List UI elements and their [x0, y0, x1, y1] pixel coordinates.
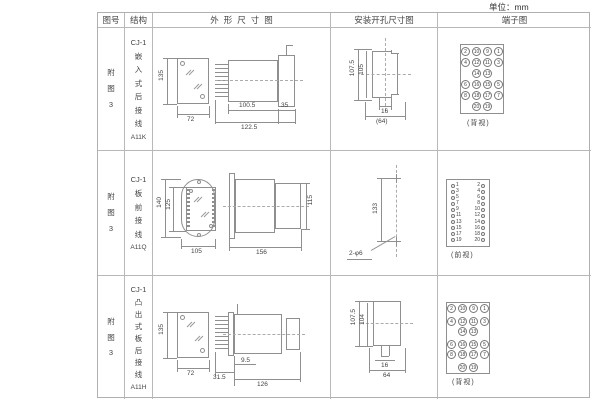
dim-label-inner-width: 16 — [381, 363, 388, 370]
terminal-circle: 7 — [480, 350, 489, 359]
terminal-circle: 17 — [469, 350, 478, 359]
terminal-number: 19 — [456, 238, 462, 243]
terminal-circle: 2 — [461, 47, 470, 56]
cell-install-1: 107.5 105 16 (64) — [331, 28, 438, 151]
hook-line — [286, 45, 293, 46]
ext-line — [161, 179, 181, 180]
screw-hole-icon — [180, 315, 185, 320]
terminal-circle — [481, 232, 485, 236]
ext-line — [181, 239, 182, 249]
flange-outline — [278, 55, 295, 107]
ext-line — [228, 104, 229, 114]
terminal-circle — [481, 196, 485, 200]
hole-cross — [396, 174, 397, 183]
terminal-circle — [451, 238, 455, 242]
ext-line — [161, 237, 181, 238]
dim-line — [167, 58, 168, 105]
dim-line — [167, 312, 168, 358]
ext-line — [391, 98, 392, 110]
terminal-circle: 15 — [483, 80, 492, 89]
terminal-circle: 19 — [483, 102, 492, 111]
dim-label-outer-width: (64) — [376, 119, 388, 126]
terminal-row: 818177 — [461, 91, 503, 100]
ext-line — [209, 360, 210, 372]
ext-line — [301, 183, 310, 184]
terminal-circle: 14 — [458, 327, 467, 336]
center-line — [223, 206, 309, 207]
terminal-circle — [451, 190, 455, 194]
terminal-circle: 4 — [447, 317, 456, 326]
cell-terminal-1: 2109141211314136161558181772019 (背视) — [438, 28, 591, 151]
screw-hole-icon — [180, 61, 185, 66]
ext-line — [405, 102, 406, 120]
cell-terminal-3: 2109141211314136161558181772019 (背视) — [438, 276, 591, 399]
dim-label-outer-width: 64 — [383, 373, 390, 380]
terminal-circle: 8 — [461, 91, 470, 100]
terminal-circle: 20 — [458, 363, 467, 372]
header-terminal: 端子图 — [438, 13, 591, 28]
ext-line — [301, 229, 310, 230]
cell-install-3: 107.5 104 16 64 — [331, 276, 438, 399]
dim-line — [177, 114, 209, 115]
terminal-circle: 11 — [483, 58, 492, 67]
dim-line — [366, 51, 367, 98]
screw-hole-icon — [189, 189, 193, 193]
terminal-circle: 18 — [472, 91, 481, 100]
fig-no-label: 附图3 — [107, 189, 115, 236]
terminal-circle: 15 — [469, 340, 478, 349]
dim-label-depth: 156 — [256, 250, 267, 257]
view-label: (背视) — [467, 120, 490, 127]
structure-desc: 板前接线 — [135, 187, 143, 241]
dim-label-outer-height: 107.5 — [351, 309, 358, 325]
dim-line — [381, 178, 382, 241]
dim-line — [181, 246, 215, 247]
terminal-pins — [215, 316, 228, 350]
terminal-number: 18 — [474, 232, 480, 237]
terminal-number: 14 — [474, 220, 480, 225]
dim-label-outer-height: 107.5 — [350, 60, 357, 76]
terminal-circle: 10 — [472, 47, 481, 56]
terminal-circle: 17 — [483, 91, 492, 100]
dim-line — [278, 110, 295, 111]
terminal-box: 2109141211314136161558181772019 — [460, 44, 504, 114]
ext-line — [354, 49, 372, 50]
dim-line — [375, 360, 395, 361]
header-outline: 外形尺寸图 — [153, 13, 331, 28]
terminal-number: 13 — [456, 220, 462, 225]
view-label: (背视) — [452, 379, 475, 386]
header-structure: 结构 — [125, 13, 153, 28]
terminal-circle: 6 — [447, 340, 456, 349]
terminal-row: 21091 — [461, 47, 503, 56]
terminal-circle — [481, 208, 485, 212]
header-fig-no: 图号 — [98, 13, 125, 28]
terminal-circle — [481, 214, 485, 218]
terminal-circle: 20 — [472, 102, 481, 111]
cell-fig-no-3: 附图3 — [98, 276, 125, 399]
terminal-circle — [481, 238, 485, 242]
terminal-row: 412113 — [461, 58, 503, 67]
fig-no-label: 附图3 — [107, 65, 115, 112]
terminal-grid: 1234567891011121314151617181920 — [447, 180, 489, 246]
ext-line — [169, 187, 186, 188]
dim-label-outer-height: 140 — [157, 197, 164, 208]
dim-line — [379, 106, 391, 107]
dim-label-total-depth: 122.5 — [241, 125, 257, 132]
terminal-row: 818177 — [447, 350, 489, 359]
header-install: 安装开孔尺寸图 — [331, 13, 438, 28]
terminal-circle: 8 — [447, 350, 456, 359]
structure-code: A11H — [131, 384, 147, 391]
dim-label-inner-height: 105 — [359, 64, 366, 75]
terminal-strip — [187, 189, 190, 229]
terminal-number: 17 — [456, 232, 462, 237]
terminal-circle: 4 — [461, 58, 470, 67]
terminal-circle — [451, 208, 455, 212]
dim-label-hole-spacing: 133 — [373, 203, 380, 214]
dim-label-height: 135 — [159, 70, 166, 81]
terminal-row: 1413 — [447, 327, 489, 336]
dim-line — [234, 379, 300, 380]
terminal-circle — [451, 196, 455, 200]
terminal-circle — [451, 226, 455, 230]
ext-line — [229, 239, 230, 251]
terminal-circle: 7 — [494, 91, 503, 100]
terminal-row: 21091 — [447, 304, 489, 313]
dim-label-height: 135 — [159, 324, 166, 335]
dim-line — [228, 110, 278, 111]
terminal-circle — [481, 202, 485, 206]
ext-line — [177, 360, 178, 372]
terminal-circle — [451, 184, 455, 188]
side-view-body — [228, 60, 278, 102]
ext-line — [355, 301, 373, 302]
dim-label-width: 105 — [191, 249, 202, 256]
terminal-circle — [481, 226, 485, 230]
terminal-circle — [481, 184, 485, 188]
terminal-circle: 14 — [472, 69, 481, 78]
cell-outline-2: 140 125 105 156 115 — [153, 151, 331, 276]
ext-line — [295, 109, 296, 124]
dim-line — [367, 303, 368, 346]
terminal-circle — [481, 190, 485, 194]
screw-hole-icon — [197, 180, 201, 184]
terminal-circle: 13 — [469, 327, 478, 336]
terminal-circle: 5 — [480, 340, 489, 349]
ext-line — [177, 106, 178, 118]
terminal-circle: 9 — [483, 47, 492, 56]
terminal-circle: 12 — [458, 317, 467, 326]
ext-line — [163, 358, 177, 359]
structure-desc: 凸出式板后接线 — [135, 297, 143, 381]
page: { "unit_label": "单位：mm", "table": { "hea… — [0, 0, 600, 400]
terminal-circle: 16 — [472, 80, 481, 89]
screw-hole-icon — [209, 224, 213, 228]
dim-label-body-depth: 126 — [257, 382, 268, 389]
terminal-pins — [215, 64, 228, 98]
cutout-notch — [391, 94, 399, 98]
ext-line — [355, 346, 373, 347]
structure-code: A11K — [131, 134, 146, 141]
screw-hole-icon — [197, 233, 201, 237]
fig-no-label: 附图3 — [107, 314, 115, 361]
terminal-box: 2109141211314136161558181772019 — [446, 302, 490, 374]
terminal-circle: 11 — [469, 317, 478, 326]
terminal-circle: 1 — [480, 304, 489, 313]
cell-outline-3: 135 72 31.5 9.5 126 — [153, 276, 331, 399]
terminal-row: 412113 — [447, 315, 489, 326]
leader-line — [371, 236, 396, 251]
cell-outline-1: 135 72 100.5 35 122.5 — [153, 28, 331, 151]
cutout-notch — [391, 50, 399, 54]
terminal-number: 11 — [456, 213, 461, 218]
terminal-circle — [451, 220, 455, 224]
dim-label-width: 72 — [187, 117, 194, 124]
dim-label-flange-depth: 31.5 — [213, 375, 226, 382]
ext-line — [209, 106, 210, 118]
dim-label-inner-height: 125 — [166, 199, 173, 210]
terminal-row: 1112 — [451, 213, 485, 218]
cutout-tab — [381, 346, 382, 356]
dim-line — [229, 247, 301, 248]
dim-line — [173, 187, 174, 231]
dim-label-body-depth: 100.5 — [239, 103, 255, 110]
cell-structure-2: CJ-1 板前接线 A11Q — [125, 151, 153, 276]
terminal-circle — [451, 232, 455, 236]
structure-desc: 嵌入式后接线 — [135, 50, 143, 131]
cutout-tab — [389, 346, 390, 356]
ext-line — [215, 239, 216, 249]
terminal-row: 616155 — [461, 80, 503, 89]
dim-label-width: 72 — [187, 371, 194, 378]
terminal-circle — [451, 214, 455, 218]
cell-terminal-2: 1234567891011121314151617181920 (前视) — [438, 151, 591, 276]
hole-cross — [396, 237, 397, 246]
terminal-circle: 13 — [483, 69, 492, 78]
dim-line — [215, 372, 234, 373]
terminal-circle: 12 — [472, 58, 481, 67]
screw-hole-icon — [200, 348, 205, 353]
terminal-grid: 2109141211314136161558181772019 — [461, 45, 503, 113]
terminal-circle: 18 — [458, 350, 467, 359]
terminal-circle: 3 — [494, 58, 503, 67]
leader-line — [347, 259, 372, 260]
terminal-row: 2019 — [461, 102, 503, 111]
ext-line — [169, 231, 186, 232]
dim-label-flange-depth: 35 — [281, 103, 288, 110]
dim-line — [306, 183, 307, 229]
terminal-number: 15 — [456, 226, 462, 231]
structure-model: CJ-1 — [131, 285, 147, 294]
screw-hole-icon — [200, 94, 205, 99]
terminal-circle: 19 — [469, 363, 478, 372]
center-line — [223, 334, 305, 335]
cutout-tab — [381, 356, 389, 357]
ext-line — [234, 356, 235, 386]
terminal-grid: 2109141211314136161558181772019 — [447, 303, 489, 373]
spec-table: 图号 结构 外形尺寸图 安装开孔尺寸图 端子图 附图3 CJ-1 嵌入式后接线 … — [97, 12, 590, 398]
dim-label-inner-height: 104 — [360, 314, 367, 325]
ext-line — [377, 178, 393, 179]
terminal-circle: 9 — [469, 304, 478, 313]
cell-fig-no-2: 附图3 — [98, 151, 125, 276]
ext-line — [405, 348, 406, 373]
terminal-row: 1516 — [451, 226, 485, 231]
terminal-row: 616155 — [447, 338, 489, 349]
terminal-circle: 16 — [458, 340, 467, 349]
terminal-number: 20 — [474, 238, 480, 243]
terminal-number: 16 — [474, 226, 480, 231]
terminal-circle: 1 — [494, 47, 503, 56]
cell-install-2: 133 2-φ6 — [331, 151, 438, 276]
ext-line — [301, 229, 302, 251]
center-line — [361, 74, 411, 75]
dim-label-holes: 2-φ6 — [349, 251, 363, 258]
terminal-number: 12 — [474, 213, 480, 218]
ext-line — [300, 352, 301, 382]
cell-structure-3: CJ-1 凸出式板后接线 A11H — [125, 276, 153, 399]
ext-line — [163, 104, 177, 105]
terminal-circle: 5 — [494, 80, 503, 89]
terminal-box: 1234567891011121314151617181920 — [446, 179, 490, 247]
terminal-row: 2019 — [447, 361, 489, 372]
terminal-strip — [212, 189, 215, 229]
hook-line — [237, 304, 238, 314]
cell-structure-1: CJ-1 嵌入式后接线 A11K — [125, 28, 153, 151]
dim-label-stud-depth: 9.5 — [241, 358, 250, 365]
terminal-row: 1718 — [451, 232, 485, 237]
hook-line — [286, 45, 287, 55]
ext-line — [379, 98, 380, 110]
dim-label-inner-width: 16 — [381, 109, 388, 116]
terminal-row: 1920 — [451, 238, 485, 243]
view-label: (前视) — [451, 252, 474, 259]
ext-line — [163, 58, 177, 59]
ext-line — [215, 100, 216, 124]
ext-line — [163, 312, 177, 313]
dim-line — [369, 370, 405, 371]
terminal-circle: 10 — [458, 304, 467, 313]
terminal-circle — [481, 220, 485, 224]
ext-line — [354, 100, 372, 101]
dim-label-side-height: 115 — [308, 195, 315, 205]
ext-line — [365, 102, 366, 120]
structure-model: CJ-1 — [131, 38, 147, 47]
dim-line — [215, 122, 295, 123]
terminal-circle — [451, 202, 455, 206]
center-line — [361, 323, 413, 324]
dim-line — [365, 116, 405, 117]
terminal-row: 1413 — [461, 69, 503, 78]
terminal-row: 1314 — [451, 220, 485, 225]
terminal-circle: 2 — [447, 304, 456, 313]
terminal-circle: 6 — [461, 80, 470, 89]
terminal-circle: 3 — [480, 317, 489, 326]
cell-fig-no-1: 附图3 — [98, 28, 125, 151]
structure-code: A11Q — [130, 244, 146, 251]
structure-model: CJ-1 — [131, 175, 147, 184]
dim-line — [177, 368, 209, 369]
